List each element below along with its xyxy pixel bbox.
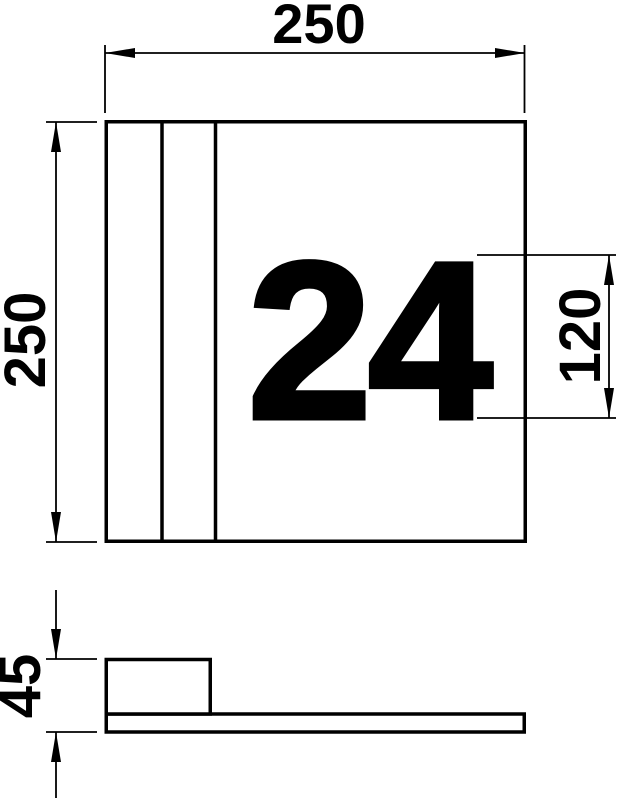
front-view: 24 (106, 122, 525, 542)
arrow-right-icon (495, 48, 525, 58)
side-view (106, 660, 524, 733)
arrow-up-icon (51, 122, 61, 152)
dimension-drawing-svg: 24 250 250 120 (0, 0, 618, 800)
arrow-up-icon (604, 255, 614, 285)
house-number-text: 24 (247, 216, 492, 466)
dimension-height-label: 250 (0, 292, 58, 389)
dimension-height: 250 (0, 122, 97, 542)
spacer-block-outline (106, 660, 210, 715)
arrow-down-icon (604, 388, 614, 418)
dimension-width: 250 (105, 0, 525, 113)
dimension-depth: 45 (0, 590, 97, 798)
dimension-depth-label: 45 (0, 654, 53, 719)
dimension-digit-height-label: 120 (548, 288, 613, 385)
dimension-width-label: 250 (272, 0, 365, 55)
arrow-up-icon (51, 732, 61, 762)
arrow-down-icon (51, 512, 61, 542)
arrow-left-icon (105, 48, 135, 58)
technical-drawing-canvas: 24 250 250 120 (0, 0, 618, 800)
plate-profile-outline (106, 714, 524, 732)
